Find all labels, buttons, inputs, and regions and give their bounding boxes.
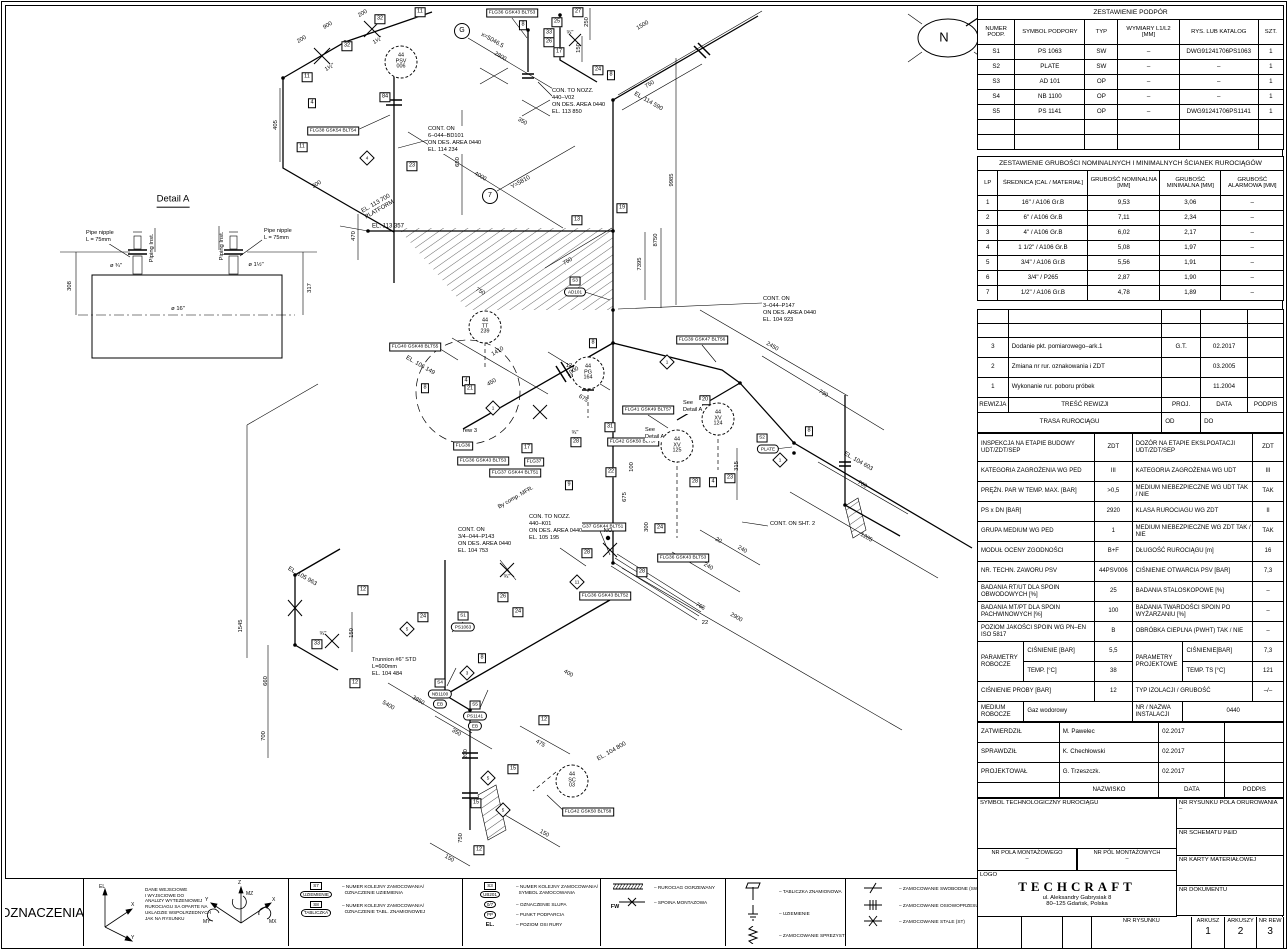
dimension-label: 470 xyxy=(351,231,357,241)
cell: POZIOM JAKOŚCI SPOIN WG PN–EN ISO 5817 xyxy=(978,622,1095,642)
cell: 2,34 xyxy=(1160,211,1221,226)
dimension-label: 7395 xyxy=(637,258,643,271)
dimension-lines xyxy=(247,8,938,866)
platform-hatch xyxy=(398,228,613,310)
dimension-label: 308 xyxy=(67,281,73,291)
cell: – xyxy=(1118,90,1179,105)
cell xyxy=(1201,310,1248,324)
approvals-table: ZATWIERDZIŁM. Pawelec02.2017 SPRAWDZIŁK.… xyxy=(977,722,1284,798)
item-number-tag: 13 xyxy=(571,215,582,225)
text-label: 22 xyxy=(702,620,708,626)
cell: 2920 xyxy=(1095,502,1133,522)
legend-item: FW– SPOINA MONTAZOWA xyxy=(602,896,723,910)
support-symbol-tag: PLATE xyxy=(757,445,779,454)
cell: K. Chechłowski xyxy=(1059,743,1158,763)
dimension-label: 200 xyxy=(463,749,469,759)
dimension-label: 317 xyxy=(307,283,313,293)
cell: 1 xyxy=(1095,522,1133,542)
node-dots xyxy=(281,13,847,712)
cell: – xyxy=(1221,241,1284,256)
legend-item: 0/7– OZNACZENIE SLUPA xyxy=(464,901,598,908)
item-number-tag: 17 xyxy=(553,47,564,57)
cell: 7,3 xyxy=(1253,642,1284,662)
cell: GRUPA MEDIUM WG PED xyxy=(978,522,1095,542)
cell: PARAMETRY ROBOCZE xyxy=(978,642,1024,682)
sw-icon xyxy=(847,882,899,896)
cell: 6 xyxy=(978,271,998,286)
item-number-tag: 11 xyxy=(297,142,308,152)
cell: AD 101 xyxy=(1015,75,1085,90)
item-number-tag: 11 xyxy=(302,72,313,82)
item-number-tag: 12 xyxy=(349,678,360,688)
item-number-tag: 28 xyxy=(636,567,647,577)
nr-karty-label: NR KARTY MATERIAŁOWEJ xyxy=(1179,857,1256,863)
compass-letter: N xyxy=(939,31,948,46)
cell xyxy=(1258,135,1283,150)
cell xyxy=(1008,324,1162,338)
support-symbol-tag: EB xyxy=(468,722,482,731)
cell: 1 xyxy=(978,378,1009,398)
instrument-bubble: 44 TT 239 xyxy=(469,311,502,344)
legend-section-supports: – ZAMOCOWANIE SWOBODNE (SW)– ZAMOCOWANIE… xyxy=(845,879,977,946)
detail-title: Detail A xyxy=(157,195,190,208)
axis-mx-label: MX xyxy=(269,919,277,925)
cell: – xyxy=(1118,75,1179,90)
cell: 1 xyxy=(1258,60,1283,75)
cell xyxy=(1015,135,1085,150)
cell: DATA xyxy=(1159,783,1225,798)
arkusz-label: ARKUSZ xyxy=(1192,918,1224,924)
cell: – xyxy=(1221,271,1284,286)
dimension-label: 750 xyxy=(458,833,464,843)
cell: – xyxy=(1221,256,1284,271)
cell: GRUBOŚĆ NOMINALNA [MM] xyxy=(1088,171,1160,196)
cell: 7,3 xyxy=(1253,562,1284,582)
cell: – xyxy=(1221,196,1284,211)
cell: 02.2017 xyxy=(1201,338,1248,358)
text-label: ¾" xyxy=(504,574,511,580)
instrument-bubble: 44 SC 03 xyxy=(556,765,589,798)
detail-a-geometry xyxy=(60,226,317,358)
legend-item-text: – NUMER KOLEJNY ZAMOCOWANIA/ OZNACZENIE … xyxy=(342,903,425,914)
item-number-tag: 12 xyxy=(538,715,549,725)
text-label: ø 16" xyxy=(171,306,185,312)
st-icon xyxy=(847,915,899,929)
legend-item: EL.– POZIOM OSI RURY xyxy=(464,922,598,928)
axis-z-label: Z xyxy=(238,880,241,886)
cell: DATA xyxy=(1201,398,1248,413)
drawing-sheet: NDetail A44 PSV 00644 TT 23944 PG 16444 … xyxy=(0,0,1288,950)
cell: CIŚNIENIE [BAR] xyxy=(1024,642,1095,662)
dimension-label: 650 xyxy=(455,157,461,167)
cell: SW xyxy=(1085,45,1118,60)
cell: TEMP. [°C] xyxy=(1024,662,1095,682)
flange-tag: FLG36 xyxy=(453,442,473,451)
support-number-tag: S1 xyxy=(458,612,469,621)
cell: 03.2005 xyxy=(1201,358,1248,378)
cell: BADANIA MT/PT DLA SPOIN PACHWINOWYCH [%] xyxy=(978,602,1095,622)
item-number-tag: 26 xyxy=(543,37,554,47)
cell: NR / NAZWA INSTALACJI xyxy=(1132,702,1183,722)
cell: II xyxy=(1253,502,1284,522)
cell: 11.2004 xyxy=(1201,378,1248,398)
flange-tag: FLG39 GSK47 BLT56 xyxy=(676,336,728,345)
legend-item: S3UB201– NUMER KOLEJNY ZAMOCOWANIA/ SYMB… xyxy=(464,882,598,898)
flange-tag: FLG36 GSK43 BLT52 xyxy=(579,592,631,601)
text-label: ¾" xyxy=(320,631,327,637)
data-tables-column: ZESTAWIENIE PODPÓRNUMER PODP.SYMBOL PODP… xyxy=(977,5,1284,949)
cell xyxy=(1162,324,1201,338)
reference-circle: G xyxy=(454,23,470,39)
item-number-tag: 24 xyxy=(417,612,428,622)
cell: 9,53 xyxy=(1088,196,1160,211)
dimension-label: 100 xyxy=(629,462,635,472)
legend-item-text: – ZAMOCOWANIE STALE (ST) xyxy=(899,919,965,925)
cell: – xyxy=(1118,105,1179,120)
cell: ZDT xyxy=(1253,434,1284,462)
nr-dokumentu-label: NR DOKUMENTU xyxy=(1179,887,1227,893)
cell: SZT. xyxy=(1258,20,1283,45)
nr-pol-montazowych-box: NR PÓL MONTAŻOWYCH – xyxy=(1077,849,1177,871)
weld-icon: FW xyxy=(602,896,654,910)
revision-table: 3Dodanie pkt. pomiarowego–ark.1G.T.02.20… xyxy=(977,309,1284,433)
ground-icon xyxy=(727,905,779,924)
legend-item-text: – PUNKT PODPARCIA xyxy=(516,912,564,918)
thickness-table: ZESTAWIENIE GRUBOŚCI NOMINALNYCH I MINIM… xyxy=(977,156,1284,301)
cell xyxy=(978,135,1015,150)
cell: Zmiana nr rur. oznakowania i ZDT xyxy=(1008,358,1162,378)
cell: 6,02 xyxy=(1088,226,1160,241)
dimension-label: 8750 xyxy=(653,234,659,247)
piping-isometric-svg xyxy=(0,0,978,878)
cell xyxy=(1225,763,1284,783)
cell xyxy=(1085,135,1118,150)
legend-item: – UZIEMIENIE xyxy=(727,905,843,924)
cell: 1,91 xyxy=(1160,256,1221,271)
dimension-label: 315 xyxy=(734,461,740,471)
cell xyxy=(1248,324,1284,338)
item-number-tag: 33 xyxy=(311,639,322,649)
cell: S3 xyxy=(978,75,1015,90)
dimension-label: 150 xyxy=(349,628,355,638)
empty-cell xyxy=(1063,917,1092,949)
cell: – xyxy=(1118,45,1179,60)
cell: 7,11 xyxy=(1088,211,1160,226)
cell: PRĘŻN. PAR W TEMP. MAX. [BAR] xyxy=(978,482,1095,502)
legend-section-fixtures: – TABLICZKA ZNAMIONOWA– UZIEMIENIE– ZAMO… xyxy=(725,879,846,946)
arkuszy-cell: ARKUSZY 2 xyxy=(1225,917,1258,949)
tag-icon: S3UB201 xyxy=(464,882,516,898)
cell: – xyxy=(1221,286,1284,301)
spring-icon xyxy=(727,926,779,946)
heated-icon xyxy=(602,882,654,893)
legend-item-text: – ZAMOCOWANIE OSIOWOPRZESUWNE (OP) xyxy=(899,903,977,909)
dimension-label: 660 xyxy=(263,676,269,686)
flange-tag: FLG36 GSK43 BLT53 xyxy=(486,9,538,18)
item-number-tag: 19 xyxy=(616,203,627,213)
legend-section-anchors-b: S3UB201– NUMER KOLEJNY ZAMOCOWANIA/ SYMB… xyxy=(462,879,601,946)
cell: – xyxy=(1118,60,1179,75)
cell: – xyxy=(1221,211,1284,226)
logo-box: LOGO TechCraft ul. Aleksandry Gabrysiak … xyxy=(977,871,1177,917)
cell: S2 xyxy=(978,60,1015,75)
cell: TYP xyxy=(1085,20,1118,45)
cell: 1 1/2" / A106 Gr.B xyxy=(998,241,1088,256)
legend-section-pipe: – RUROCIAG OGRZEWANYFW– SPOINA MONTAZOWA xyxy=(600,879,726,946)
item-number-tag: 4 xyxy=(308,98,316,108)
tag-icon: 0/7 xyxy=(464,901,516,908)
nr-pola-montazowego-box: NR POLA MONTAŻOWEGO – xyxy=(977,849,1077,871)
cell xyxy=(978,324,1009,338)
item-number-tag: 17 xyxy=(521,443,532,453)
company-address-2: 80–125 Gdańsk, Polska xyxy=(980,901,1174,907)
cell xyxy=(1179,135,1258,150)
nr-rew-label: NR REW xyxy=(1257,918,1283,924)
cell: TAK xyxy=(1253,482,1284,502)
cell: S4 xyxy=(978,90,1015,105)
cell xyxy=(1008,310,1162,324)
nr-rew-cell: NR REW 3 xyxy=(1257,917,1284,949)
cell: 25 xyxy=(1095,582,1133,602)
axis-x2-label: X xyxy=(272,897,275,903)
support-number-tag: S3 xyxy=(570,277,581,286)
support-symbol-tag: PS1063 xyxy=(451,623,475,632)
note: CON. TO NOZZ. 440–K01 ON DES. AREA 0440 … xyxy=(529,514,582,542)
legend-item-text: – NUMER KOLEJNY ZAMOCOWANIA/ SYMBOL ZAMO… xyxy=(516,884,598,895)
legend-item-text: – TABLICZKA ZNAMIONOWA xyxy=(779,889,842,895)
item-number-tag: 25 xyxy=(551,17,562,27)
cell: ZESTAWIENIE GRUBOŚCI NOMINALNYCH I MINIM… xyxy=(978,157,1284,171)
cell: 5,56 xyxy=(1088,256,1160,271)
cell: 44PSV006 xyxy=(1095,562,1133,582)
cell: ŚREDNICA [CAL / MATERIAŁ] xyxy=(998,171,1088,196)
legend-item: – ZAMOCOWANIE SPREZYSTE (SS) xyxy=(727,926,843,946)
note: CONT. ON 3/4–044–P143 ON DES. AREA 0440 … xyxy=(458,527,511,555)
text-label: rew 3 xyxy=(463,428,477,434)
cell xyxy=(1248,378,1284,398)
cell: BADANIA RT/UT DLA SPOIN OBWODOWYCH [%] xyxy=(978,582,1095,602)
cell xyxy=(1258,120,1283,135)
cell: PODPIS xyxy=(1225,783,1284,798)
cell: 02.2017 xyxy=(1159,723,1225,743)
cell: 100 xyxy=(1095,602,1133,622)
dimension-label: 405 xyxy=(273,120,279,130)
item-number-tag: 28 xyxy=(581,548,592,558)
cell xyxy=(1162,310,1201,324)
cell: PROJEKTOWAŁ xyxy=(978,763,1060,783)
cell: OBRÓBKA CIEPLNA (PWHT) TAK / NIE xyxy=(1132,622,1252,642)
cell: TAK xyxy=(1253,522,1284,542)
cell: 7 xyxy=(978,286,998,301)
cell: – xyxy=(1253,602,1284,622)
anchor-hatches xyxy=(478,498,866,840)
item-number-tag: 28 xyxy=(570,437,581,447)
title-block: SYMBOL TECHNOLOGICZNY RUROCIĄGU NR POLA … xyxy=(977,798,1284,917)
legend-strip: OZNACZENIA: EL X Y DANE WEJSCIOWE I xyxy=(5,878,977,946)
dimension-label: 700 xyxy=(261,731,267,741)
axes-note: DANE WEJSCIOWE I WYJSCIOWE DO ANALIZY WY… xyxy=(145,887,211,921)
item-number-tag: 11 xyxy=(415,7,426,17)
cell: 1 xyxy=(1258,45,1283,60)
item-number-tag: 24 xyxy=(654,523,665,533)
title-block-bottom-row: NR RYSUNKU ARKUSZ 1 ARKUSZY 2 NR REW 3 xyxy=(977,917,1284,949)
item-number-tag: 21 xyxy=(464,384,475,394)
text-label: ø ¾" xyxy=(110,263,122,269)
cell: 38 xyxy=(1095,662,1133,682)
cell: MEDIUM ROBOCZE xyxy=(978,702,1024,722)
empty-cell xyxy=(1022,917,1062,949)
cell xyxy=(1248,310,1284,324)
item-number-tag: 84 xyxy=(379,92,390,102)
legend-item-text: – UZIEMIENIE xyxy=(779,911,810,917)
cell: 02.2017 xyxy=(1159,743,1225,763)
cell: 1 xyxy=(1258,90,1283,105)
empty-cell xyxy=(977,917,1022,949)
cell xyxy=(1225,743,1284,763)
cell: REWIZJA xyxy=(978,398,1009,413)
item-number-tag: 8 xyxy=(421,383,429,393)
item-number-tag: 32 xyxy=(341,41,352,51)
cell: 2,87 xyxy=(1088,271,1160,286)
cell: 1 xyxy=(978,196,998,211)
note: CONT. ON SHT. 2 xyxy=(770,521,815,528)
legend-item: – ZAMOCOWANIE SWOBODNE (SW) xyxy=(847,882,975,896)
item-number-tag: 26 xyxy=(497,592,508,602)
cell: 02.2017 xyxy=(1159,763,1225,783)
tag-icon: PP xyxy=(464,911,516,918)
cell xyxy=(1201,324,1248,338)
item-number-tag: 12 xyxy=(473,845,484,855)
cell: 1,89 xyxy=(1160,286,1221,301)
supports-table: ZESTAWIENIE PODPÓRNUMER PODP.SYMBOL PODP… xyxy=(977,5,1284,150)
legend-title: OZNACZENIA: xyxy=(5,905,84,920)
flange-tag: FLG37 GSK44 BLT51 xyxy=(489,469,541,478)
legend-item-text: – ZAMOCOWANIE SWOBODNE (SW) xyxy=(899,886,977,892)
flange-tag: FLG40 GSK48 BLT55 xyxy=(389,343,441,352)
item-number-tag: 23 xyxy=(406,161,417,171)
cell: SYMBOL PODPORY xyxy=(1015,20,1085,45)
cell: KLASA RUROCIAGU WG ZDT xyxy=(1132,502,1252,522)
op-icon xyxy=(847,899,899,913)
axis-mz-label: MZ xyxy=(246,891,253,897)
technical-data-table: INSPEKCJA NA ETAPIE BUDOWY UDT/ZDT/SEPZD… xyxy=(977,433,1284,722)
item-number-tag: 15 xyxy=(507,764,518,774)
legend-item-text: – POZIOM OSI RURY xyxy=(516,922,562,928)
dimension-label: 1545 xyxy=(238,620,244,633)
item-number-tag: 9 xyxy=(565,480,573,490)
cell xyxy=(1162,358,1201,378)
support-number-tag: S2 xyxy=(757,434,768,443)
legend-item-text: – OZNACZENIE SLUPA xyxy=(516,902,566,908)
legend-item: PP– PUNKT PODPARCIA xyxy=(464,911,598,918)
arkusz-value: 1 xyxy=(1192,926,1224,937)
legend-item-text: – SPOINA MONTAZOWA xyxy=(654,900,707,906)
cell: BADANIA STALOSKOPOWE [%] xyxy=(1132,582,1252,602)
cell: 5,5 xyxy=(1095,642,1133,662)
cell xyxy=(978,310,1009,324)
item-number-tag: 12 xyxy=(357,585,368,595)
cell: TRASA RUROCIĄGU xyxy=(978,413,1162,433)
cell xyxy=(1248,338,1284,358)
instrument-bubble: 44 PSV 006 xyxy=(385,46,418,79)
cell: KATEGORIA ZAGROŻENIA WG UDT xyxy=(1132,462,1252,482)
legend-item: – ZAMOCOWANIE OSIOWOPRZESUWNE (OP) xyxy=(847,899,975,913)
cell: 1 xyxy=(1258,75,1283,90)
cell: KATEGORIA ZAGROŻENIA WG PED xyxy=(978,462,1095,482)
text-label: 12 xyxy=(566,363,572,369)
cell: NAZWISKO xyxy=(1059,783,1158,798)
cell: BADANIA TWARDOŚCI SPOIN PO WYŻARZANIU [%… xyxy=(1132,602,1252,622)
cell: 2 xyxy=(978,211,998,226)
dimension-label: 300 xyxy=(644,522,650,532)
cell: 1,90 xyxy=(1160,271,1221,286)
cell: ZESTAWIENIE PODPÓR xyxy=(978,6,1284,20)
cell: 3,06 xyxy=(1160,196,1221,211)
cell: TYP IZOLACJI / GRUBOŚĆ xyxy=(1132,682,1252,702)
flange-tag: FLG42 GSK50 BLT58 xyxy=(562,808,614,817)
cell: >0,5 xyxy=(1095,482,1133,502)
company-name: TechCraft xyxy=(980,879,1174,895)
cell: DO xyxy=(1201,413,1284,433)
flange-tag: FLG41 GSK49 BLT57 xyxy=(622,406,674,415)
cell: CIŚNIENIE OTWARCIA PSV [BAR] xyxy=(1132,562,1252,582)
axis-y2-label: Y xyxy=(205,897,208,903)
cell: – xyxy=(1179,60,1258,75)
cell: 5,08 xyxy=(1088,241,1160,256)
cell: OD xyxy=(1162,413,1201,433)
cell: OP xyxy=(1085,75,1118,90)
elevation-label: EL. 113 357 xyxy=(372,224,404,231)
support-symbol-tag: EB xyxy=(433,700,447,709)
nr-rysunku-pola-box: NR RYSUNKU POLA ORUROWANIA – xyxy=(1177,798,1284,829)
legend-item: S7UZIEMIENIE– NUMER KOLEJNY ZAMOCOWANIA/… xyxy=(290,882,460,898)
legend-item-text: – RUROCIAG OGRZEWANY xyxy=(654,885,715,891)
nr-schematu-label: NR SCHEMATU P&ID xyxy=(1179,830,1237,836)
nr-dokumentu-box: NR DOKUMENTU xyxy=(1177,886,1284,916)
cell: PS 1063 xyxy=(1015,45,1085,60)
note: Pipe nipple L = 75mm xyxy=(86,230,114,244)
cell: 6" / A106 Gr.B xyxy=(998,211,1088,226)
cell xyxy=(1225,723,1284,743)
cell: DWG91241706PS1141 xyxy=(1179,105,1258,120)
flange-tag: FLG38 GSK54 BLT54 xyxy=(307,127,359,136)
cell: – xyxy=(1179,75,1258,90)
item-number-tag: 28 xyxy=(689,477,700,487)
cell: DOZÓR NA ETAPIE EKSLPOATACJI UDT/ZDT/SEP xyxy=(1132,434,1252,462)
cell: ZDT xyxy=(1095,434,1133,462)
cell: ZATWIERDZIŁ xyxy=(978,723,1060,743)
cell xyxy=(1015,120,1085,135)
cell: M. Pawelec xyxy=(1059,723,1158,743)
tag-icon: S7UZIEMIENIE xyxy=(290,882,342,898)
cell: III xyxy=(1095,462,1133,482)
cell: G.T. xyxy=(1162,338,1201,358)
dimension-label: 9985 xyxy=(669,174,675,187)
cell: NB 1100 xyxy=(1015,90,1085,105)
item-number-tag: 27 xyxy=(572,7,583,17)
cell: B xyxy=(1095,622,1133,642)
cell: MODUŁ OCENY ZGODNOŚCI xyxy=(978,542,1095,562)
cell: Wykonanie rur. poboru próbek xyxy=(1008,378,1162,398)
cell: B+F xyxy=(1095,542,1133,562)
symbol-technologiczny-box: SYMBOL TECHNOLOGICZNY RUROCIĄGU xyxy=(977,798,1177,849)
support-number-tag: S4 xyxy=(435,679,446,688)
item-number-tag: 32 xyxy=(374,14,385,24)
instrument-bubble: 44 XV 124 xyxy=(702,403,735,436)
axis-my-label: MY xyxy=(203,919,211,925)
cell: 4 xyxy=(978,241,998,256)
arkuszy-value: 2 xyxy=(1225,926,1257,937)
